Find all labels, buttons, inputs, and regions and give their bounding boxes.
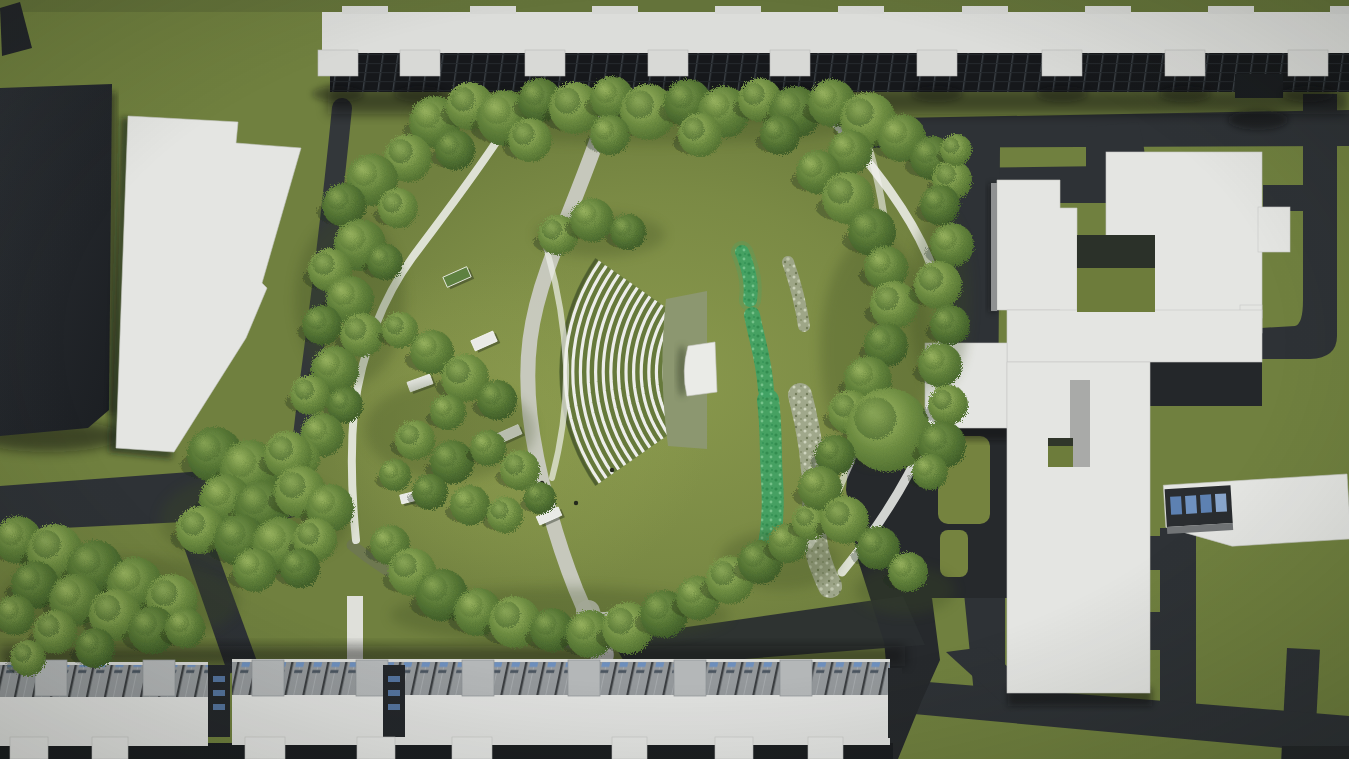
site-render: Aerial 3D architectural render of a park… — [0, 0, 1349, 759]
aerial-render-svg: Aerial 3D architectural render of a park… — [0, 0, 1349, 759]
vignette — [0, 0, 1349, 759]
